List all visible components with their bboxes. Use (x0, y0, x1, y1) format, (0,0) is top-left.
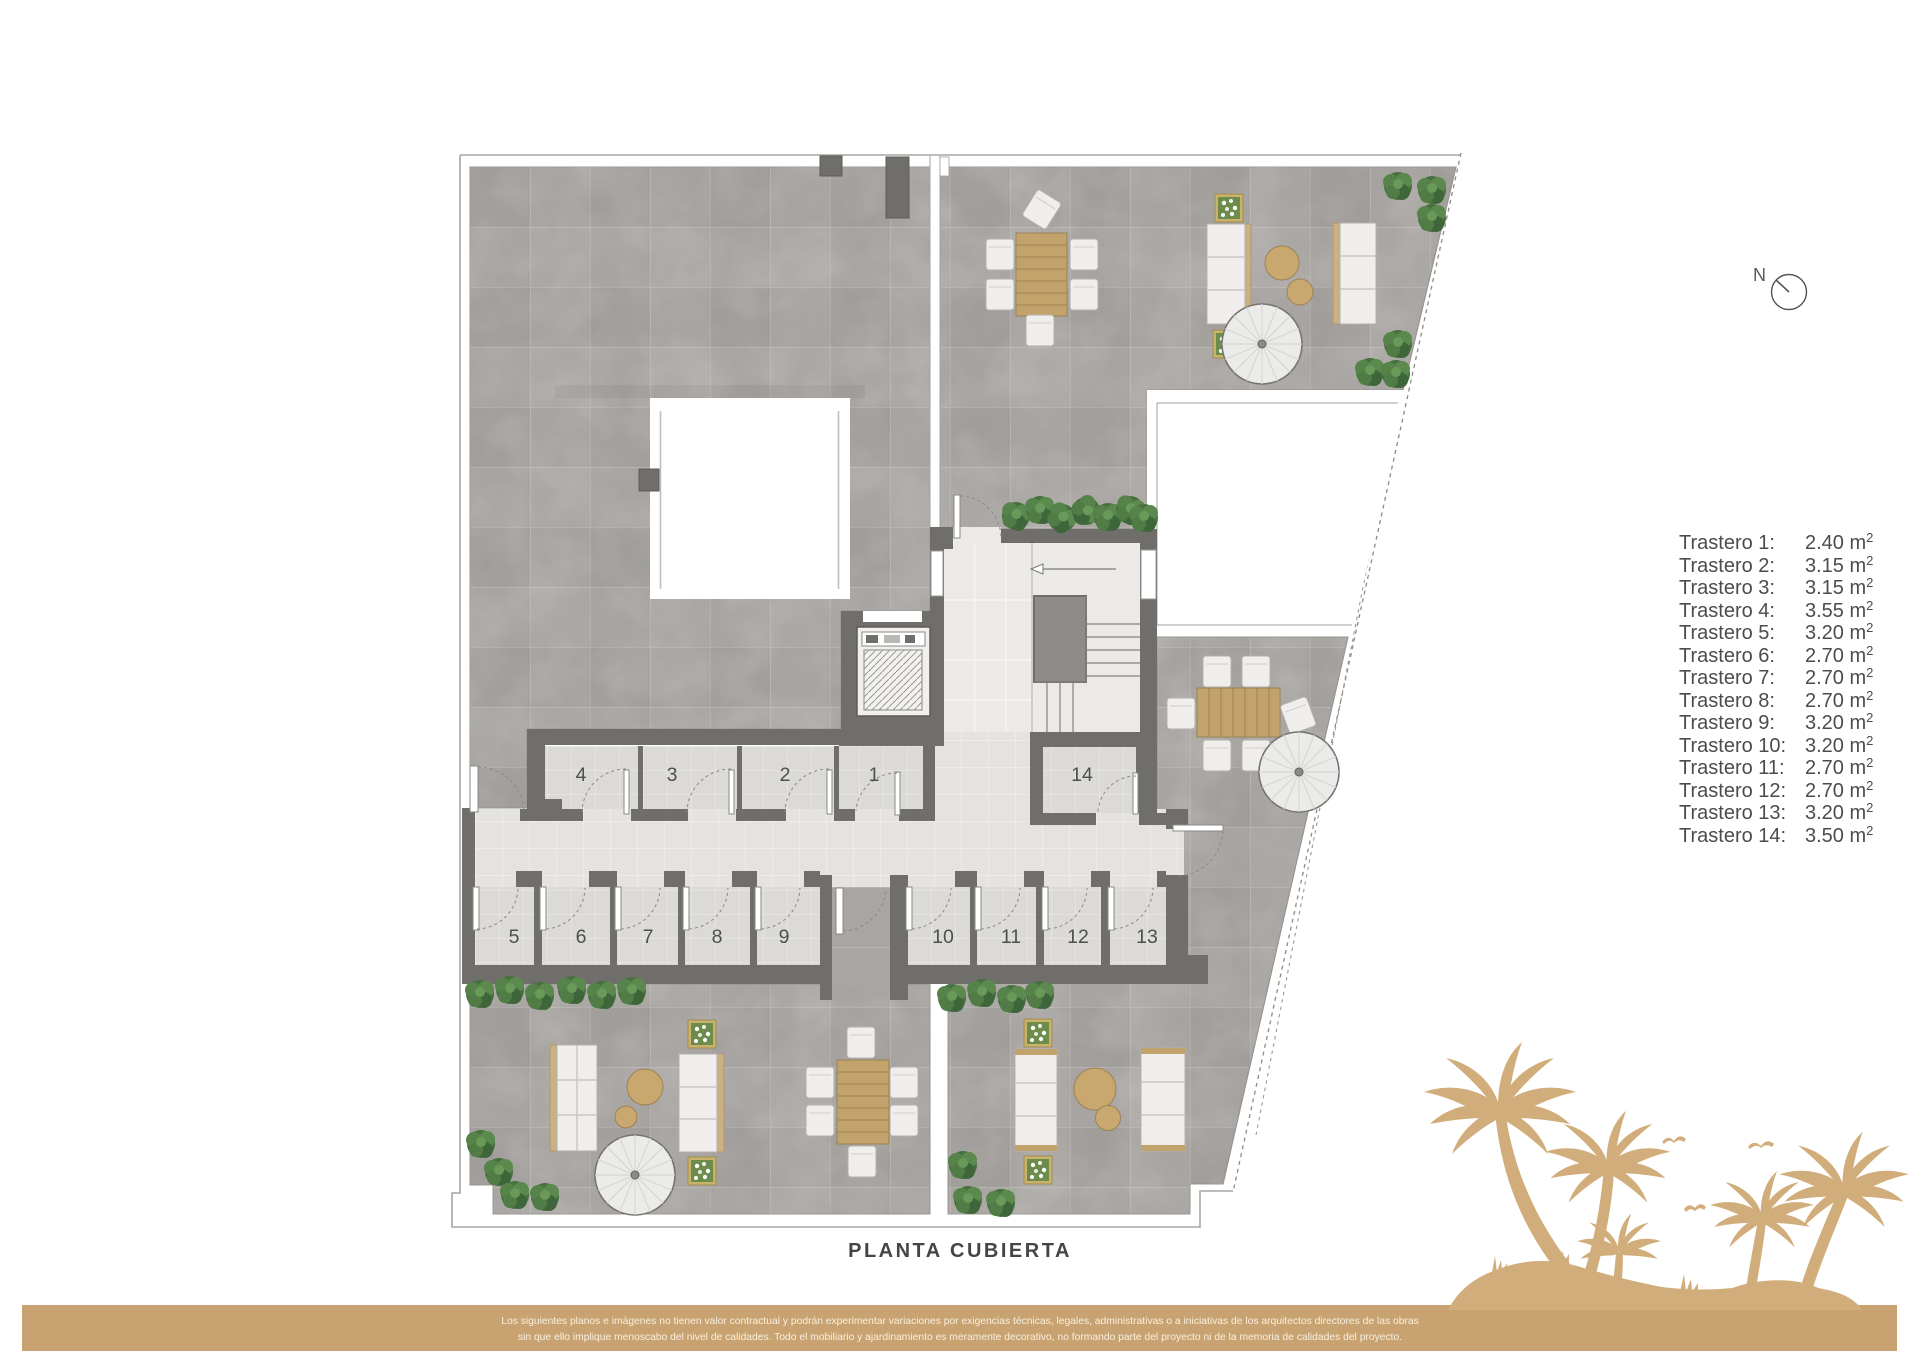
svg-text:2.70 m2: 2.70 m2 (1805, 755, 1873, 779)
svg-text:11: 11 (1001, 926, 1021, 948)
svg-text:2: 2 (780, 764, 791, 786)
svg-text:sin que ello implique menoscab: sin que ello implique menoscabo del nive… (518, 1332, 1402, 1343)
svg-text:Trastero 8:: Trastero 8: (1679, 690, 1775, 712)
svg-text:Trastero 4:: Trastero 4: (1679, 600, 1775, 622)
svg-text:Trastero 13:: Trastero 13: (1679, 802, 1786, 824)
svg-text:Trastero 6:: Trastero 6: (1679, 645, 1775, 667)
svg-text:Trastero 2:: Trastero 2: (1679, 555, 1775, 577)
svg-text:3.50 m2: 3.50 m2 (1805, 823, 1873, 847)
svg-text:PLANTA CUBIERTA: PLANTA CUBIERTA (848, 1240, 1072, 1262)
svg-text:7: 7 (643, 926, 654, 948)
svg-text:13: 13 (1136, 926, 1158, 948)
svg-text:2.70 m2: 2.70 m2 (1805, 688, 1873, 712)
svg-text:Trastero 10:: Trastero 10: (1679, 735, 1786, 757)
svg-text:10: 10 (932, 926, 954, 948)
svg-text:3.20 m2: 3.20 m2 (1805, 800, 1873, 824)
svg-text:12: 12 (1067, 926, 1089, 948)
svg-text:3.20 m2: 3.20 m2 (1805, 710, 1873, 734)
svg-text:2.40 m2: 2.40 m2 (1805, 530, 1873, 554)
svg-text:3.20 m2: 3.20 m2 (1805, 733, 1873, 757)
svg-text:Trastero 11:: Trastero 11: (1679, 757, 1785, 779)
svg-text:Trastero 9:: Trastero 9: (1679, 712, 1775, 734)
svg-text:8: 8 (712, 926, 723, 948)
svg-text:Los siguientes planos e imágen: Los siguientes planos e imágenes no tien… (501, 1316, 1419, 1327)
svg-text:Trastero 3:: Trastero 3: (1679, 577, 1775, 599)
svg-text:5: 5 (509, 926, 520, 948)
svg-text:2.70 m2: 2.70 m2 (1805, 778, 1873, 802)
svg-text:1: 1 (869, 764, 880, 786)
svg-text:14: 14 (1071, 764, 1093, 786)
svg-text:Trastero 14:: Trastero 14: (1679, 825, 1786, 847)
svg-text:9: 9 (779, 926, 790, 948)
svg-text:3.55 m2: 3.55 m2 (1805, 598, 1873, 622)
svg-text:3.15 m2: 3.15 m2 (1805, 553, 1873, 577)
svg-text:6: 6 (576, 926, 587, 948)
svg-text:Trastero 5:: Trastero 5: (1679, 622, 1775, 644)
svg-text:3.20 m2: 3.20 m2 (1805, 620, 1873, 644)
svg-text:N: N (1753, 265, 1766, 285)
svg-text:4: 4 (576, 764, 587, 786)
svg-text:3.15 m2: 3.15 m2 (1805, 575, 1873, 599)
svg-text:Trastero 7:: Trastero 7: (1679, 667, 1775, 689)
svg-text:3: 3 (667, 764, 678, 786)
svg-text:2.70 m2: 2.70 m2 (1805, 643, 1873, 667)
svg-text:Trastero 1:: Trastero 1: (1679, 532, 1775, 554)
svg-text:2.70 m2: 2.70 m2 (1805, 665, 1873, 689)
svg-text:Trastero 12:: Trastero 12: (1679, 780, 1786, 802)
